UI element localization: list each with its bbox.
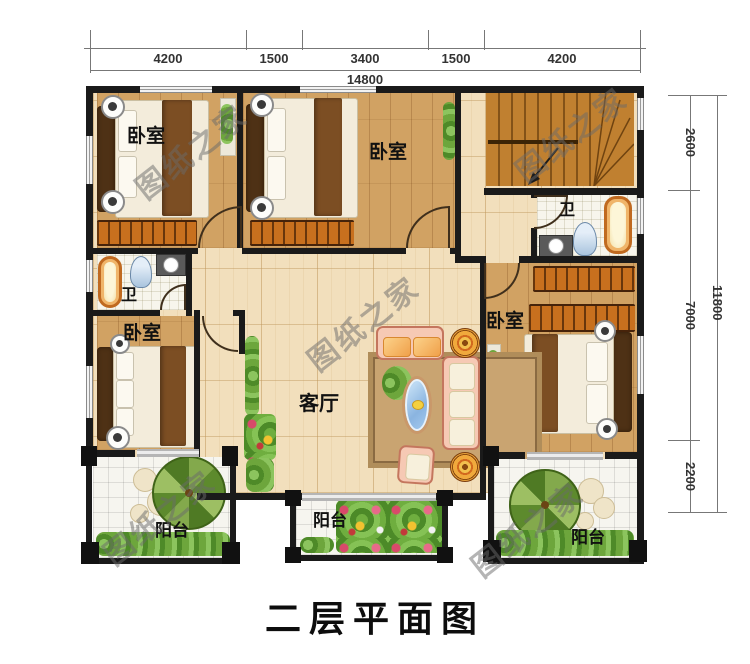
nightstand: [106, 426, 130, 450]
window: [86, 136, 93, 184]
dimension-label: 4200: [140, 51, 196, 66]
wardrobe: [533, 266, 635, 292]
nightstand: [594, 320, 616, 342]
room-label-bath-w: 卫: [118, 288, 140, 304]
corner-post: [629, 540, 647, 562]
bed-blanket: [314, 98, 342, 216]
room-label-balcony-s: 阳台: [302, 512, 358, 529]
window: [637, 198, 644, 234]
page-title: 二层平面图: [190, 590, 560, 642]
wall: [455, 93, 461, 256]
plant: [443, 102, 455, 160]
wall: [519, 256, 644, 263]
window: [637, 336, 644, 394]
dimension-tick: [668, 440, 700, 441]
nightstand: [596, 418, 618, 440]
corner-post: [437, 490, 453, 506]
window: [637, 98, 644, 130]
dimension-tick: [668, 95, 727, 96]
sink: [548, 238, 564, 254]
dimension-total-label: 14800: [333, 72, 397, 87]
pillow: [116, 380, 134, 408]
dimension-label: 3400: [337, 51, 393, 66]
dimension-label: 1500: [246, 51, 302, 66]
dimension-label: 2200: [683, 448, 698, 504]
balcony-door-sill: [302, 493, 436, 501]
dimension-line: [84, 48, 646, 49]
flower-planter: [244, 414, 276, 460]
pillow: [267, 108, 286, 152]
dimension-tick: [668, 190, 700, 191]
corner-post: [222, 542, 240, 564]
room-label-bath-e: 卫: [556, 203, 578, 219]
wardrobe: [250, 220, 354, 246]
dimension-tick: [668, 512, 727, 513]
nightstand: [101, 190, 125, 214]
window: [140, 86, 212, 93]
room-label-bedroom-n: 卧室: [360, 143, 416, 162]
dimension-tick: [90, 30, 91, 73]
sofa-three-seat: [442, 356, 480, 450]
wall: [239, 316, 245, 354]
dimension-tick: [640, 30, 641, 73]
bed-blanket: [160, 346, 186, 446]
dimension-label: 1500: [428, 51, 484, 66]
wall: [194, 310, 200, 457]
toilet: [573, 222, 597, 256]
table-decor: [412, 400, 424, 410]
room-label-living: 客厅: [290, 394, 348, 414]
wardrobe: [529, 304, 635, 332]
sofa-two-seat: [376, 326, 444, 360]
corner-post: [285, 490, 301, 506]
window: [86, 366, 93, 418]
side-table: [450, 328, 480, 358]
corner-post: [81, 446, 97, 466]
sink: [163, 257, 179, 273]
floor-plan-sheet: 卧室 卧室 卧室 卧室 客厅 卫 卫 阳台 阳台 阳台 图纸之家 图纸之家 图纸…: [0, 0, 750, 664]
wall: [242, 248, 406, 254]
nightstand: [101, 95, 125, 119]
balcony-wall: [290, 555, 448, 561]
dimension-tick: [302, 30, 303, 50]
dimension-tick: [484, 30, 485, 50]
corner-post: [222, 446, 238, 466]
bathtub: [604, 196, 632, 254]
nightstand: [250, 93, 274, 117]
armchair: [397, 445, 436, 485]
balcony-door-sill: [527, 452, 603, 460]
dimension-tick: [246, 30, 247, 50]
window: [300, 86, 376, 93]
corner-post: [437, 547, 453, 563]
dimension-label: 2600: [683, 114, 698, 170]
pillow: [267, 156, 286, 200]
room-label-balcony-se: 阳台: [560, 529, 616, 546]
wall: [90, 248, 198, 254]
stepping-stone: [593, 497, 615, 519]
wall: [531, 228, 537, 256]
corner-post: [483, 446, 499, 466]
window: [86, 260, 93, 292]
pillow: [116, 352, 134, 380]
plant: [246, 458, 274, 492]
dimension-label: 4200: [534, 51, 590, 66]
planter-hedge: [300, 537, 334, 553]
toilet: [130, 256, 152, 288]
balcony-door-sill: [137, 449, 199, 457]
dimension-label: 7000: [683, 287, 698, 343]
side-table: [450, 452, 480, 482]
wall: [484, 188, 637, 195]
pillow: [586, 342, 608, 382]
bed-headboard: [612, 332, 632, 432]
dimension-tick: [428, 30, 429, 50]
wardrobe: [97, 220, 197, 246]
wall: [186, 248, 192, 316]
wall: [637, 86, 644, 464]
room-label-bedroom-sw: 卧室: [114, 324, 170, 343]
corner-post: [285, 547, 301, 563]
nightstand: [250, 196, 274, 220]
room-label-bedroom-e: 卧室: [477, 312, 533, 331]
dimension-line: [90, 70, 640, 71]
wall: [90, 310, 160, 316]
plant: [245, 336, 259, 416]
dimension-total-label: 11800: [710, 268, 725, 338]
